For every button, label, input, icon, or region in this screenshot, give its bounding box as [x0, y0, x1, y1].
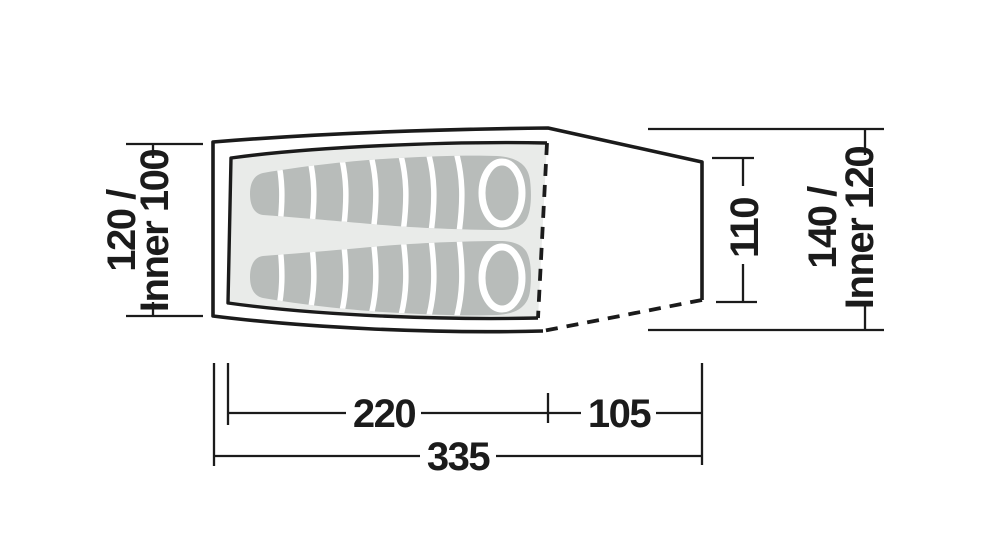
tent-dimensions-figure: 120 / Inner 100 110 140 / Inner 120 22 — [0, 0, 1000, 549]
inner-length-label: 220 — [353, 392, 415, 436]
tent-floorplan-diagram: 120 / Inner 100 110 140 / Inner 120 22 — [0, 0, 1000, 549]
porch-length-label: 105 — [588, 392, 651, 436]
rear-inner-width-label: 110 — [723, 198, 767, 258]
dimension-rear-inner-width: 110 — [712, 158, 767, 302]
total-length-label: 335 — [427, 435, 490, 479]
rear-width-label-line2: Inner 120 — [838, 147, 882, 309]
front-width-label-line2: Inner 100 — [133, 150, 177, 312]
tent — [213, 128, 702, 332]
dimension-porch-length: 105 — [548, 392, 702, 436]
dimension-inner-length: 220 — [228, 363, 548, 436]
dimension-front-width: 120 / Inner 100 — [100, 144, 203, 316]
